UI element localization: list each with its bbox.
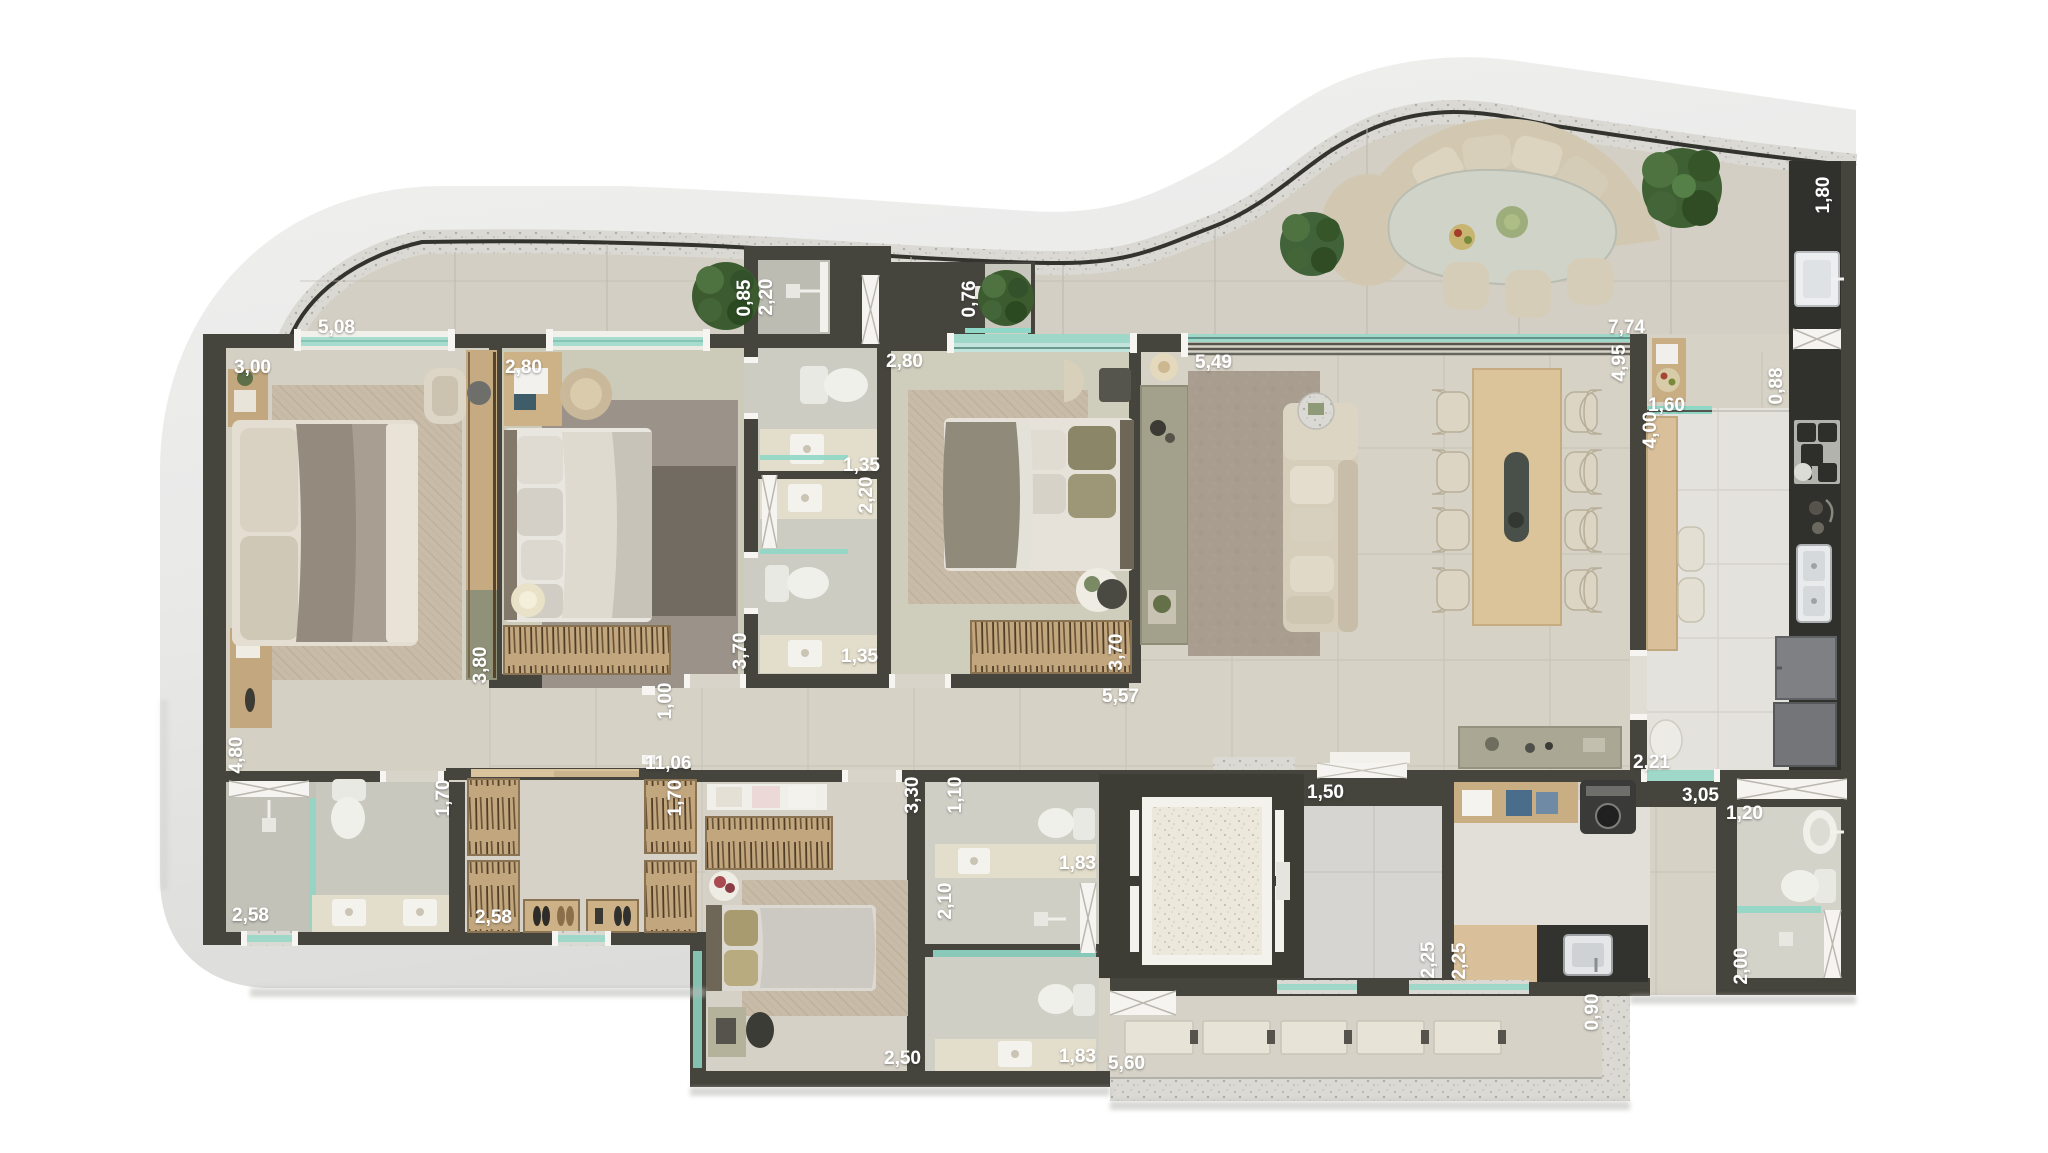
svg-text:0,85: 0,85 — [734, 279, 755, 316]
svg-text:3,70: 3,70 — [1106, 634, 1127, 671]
svg-text:2,80: 2,80 — [886, 351, 923, 372]
svg-text:0,88: 0,88 — [1766, 368, 1787, 405]
svg-text:1,83: 1,83 — [1059, 853, 1096, 874]
svg-text:1,10: 1,10 — [945, 777, 966, 814]
svg-text:3,00: 3,00 — [234, 357, 271, 378]
svg-text:5,49: 5,49 — [1195, 352, 1232, 373]
svg-text:1,35: 1,35 — [843, 455, 880, 476]
svg-text:2,25: 2,25 — [1418, 941, 1439, 978]
svg-text:2,25: 2,25 — [1449, 942, 1470, 979]
svg-text:4,00: 4,00 — [1640, 412, 1661, 449]
svg-text:0,76: 0,76 — [959, 281, 980, 318]
svg-text:2,00: 2,00 — [1731, 948, 1752, 985]
svg-text:2,21: 2,21 — [1633, 752, 1670, 773]
svg-text:3,80: 3,80 — [470, 647, 491, 684]
svg-text:2,58: 2,58 — [232, 905, 269, 926]
svg-text:1,50: 1,50 — [1307, 782, 1344, 803]
svg-text:11,06: 11,06 — [645, 753, 692, 774]
svg-text:5,08: 5,08 — [318, 317, 355, 338]
svg-text:4,80: 4,80 — [226, 737, 247, 774]
svg-text:1,70: 1,70 — [665, 780, 686, 817]
svg-text:4,95: 4,95 — [1609, 344, 1630, 381]
svg-text:5,57: 5,57 — [1102, 686, 1139, 707]
svg-text:1,20: 1,20 — [1726, 803, 1763, 824]
svg-text:3,70: 3,70 — [730, 633, 751, 670]
svg-text:3,30: 3,30 — [902, 777, 923, 814]
svg-text:1,70: 1,70 — [433, 780, 454, 817]
svg-text:5,60: 5,60 — [1108, 1053, 1145, 1074]
svg-text:2,58: 2,58 — [475, 907, 512, 928]
svg-text:1,83: 1,83 — [1059, 1046, 1096, 1067]
svg-text:2,50: 2,50 — [884, 1048, 921, 1069]
svg-text:1,80: 1,80 — [1813, 177, 1834, 214]
svg-text:3,05: 3,05 — [1682, 785, 1719, 806]
svg-text:2,10: 2,10 — [935, 883, 956, 920]
svg-text:2,20: 2,20 — [756, 279, 777, 316]
svg-text:0,90: 0,90 — [1582, 994, 1603, 1031]
svg-text:1,00: 1,00 — [655, 683, 676, 720]
svg-text:2,20: 2,20 — [856, 477, 877, 514]
svg-text:1,35: 1,35 — [841, 646, 878, 667]
svg-text:2,80: 2,80 — [505, 357, 542, 378]
svg-text:7,74: 7,74 — [1608, 317, 1645, 338]
